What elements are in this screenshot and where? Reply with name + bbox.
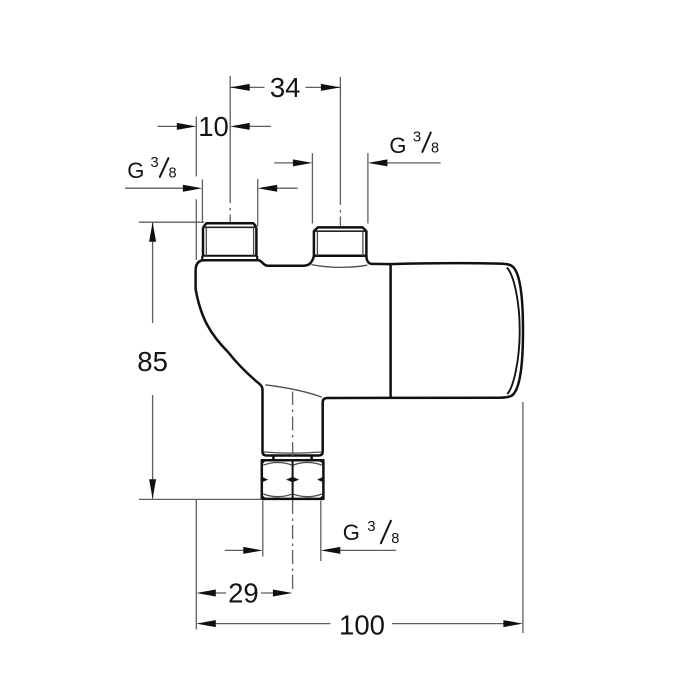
svg-text:G: G (343, 520, 360, 545)
svg-text:3: 3 (150, 154, 158, 171)
svg-text:100: 100 (339, 609, 385, 640)
svg-text:8: 8 (391, 531, 399, 547)
svg-text:10: 10 (198, 111, 229, 142)
svg-text:8: 8 (431, 141, 439, 157)
svg-text:34: 34 (270, 72, 301, 103)
svg-text:3: 3 (413, 128, 421, 145)
svg-text:8: 8 (169, 166, 177, 182)
svg-text:G: G (389, 133, 406, 158)
svg-text:3: 3 (367, 518, 375, 535)
svg-text:29: 29 (228, 578, 259, 609)
svg-text:G: G (127, 158, 144, 183)
svg-text:85: 85 (137, 346, 168, 377)
